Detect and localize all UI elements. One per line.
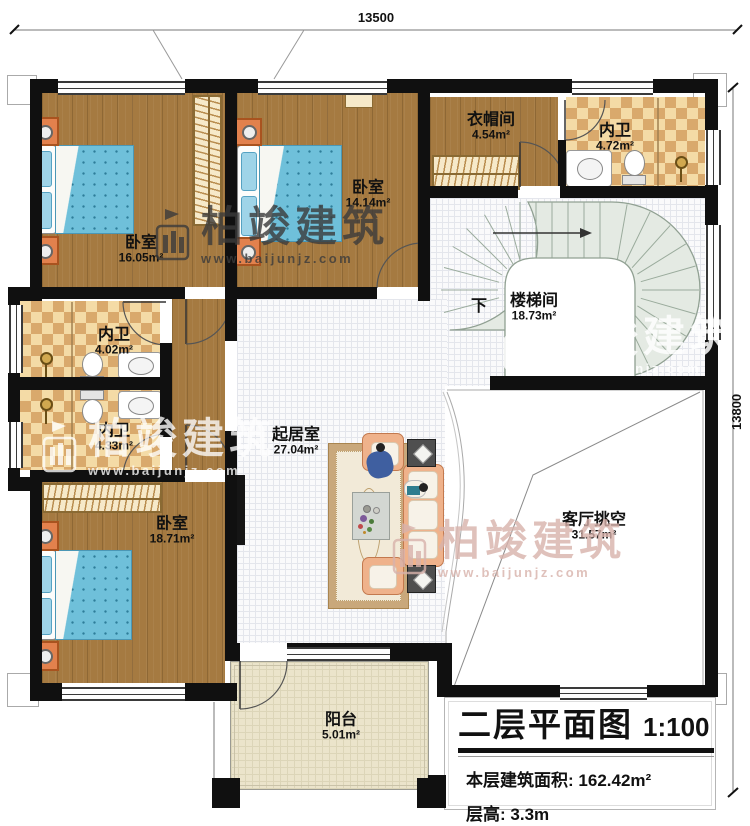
balcony-post: [212, 778, 240, 808]
room-label-stairwell: 楼梯间 18.73m²: [510, 292, 558, 323]
title-block: 二层平面图 1:100 本层建筑面积: 162.42m² 层高: 3.3m: [458, 708, 714, 825]
window: [258, 81, 387, 95]
title-row: 二层平面图 1:100: [458, 708, 714, 743]
window: [62, 687, 185, 701]
armchair-bottom: [362, 557, 404, 595]
room-area: 18.71m²: [150, 533, 195, 547]
wall: [185, 683, 237, 701]
floor-height-value: 3.3m: [510, 805, 549, 824]
room-area: 4.02m²: [95, 344, 133, 358]
wall: [232, 287, 377, 299]
wall: [428, 186, 518, 198]
title-underline-thin: [458, 756, 714, 757]
cushion: [408, 500, 438, 530]
room-name: 内卫: [596, 122, 634, 139]
dimension-line-top: [10, 25, 742, 79]
tv: [237, 475, 245, 545]
room-name: 卧室: [150, 515, 195, 532]
toilet-tank: [622, 175, 646, 185]
shower-head: [675, 156, 688, 169]
room-name: 内卫: [95, 422, 133, 439]
pillow: [241, 152, 257, 191]
room-label-living-void: 客厅挑空 31.57m²: [562, 511, 626, 542]
room-area: 4.33m²: [95, 440, 133, 454]
room-name: 起居室: [272, 426, 320, 443]
wall: [185, 79, 258, 93]
wall: [30, 287, 185, 299]
side-table: [407, 565, 436, 593]
dimension-top-value: 13500: [358, 10, 394, 25]
room-area: 16.05m²: [119, 252, 164, 266]
wall: [560, 186, 712, 198]
room-area: 18.73m²: [510, 310, 558, 324]
wall: [705, 79, 718, 130]
wall: [387, 79, 572, 93]
sink-basin: [577, 158, 603, 180]
bed1-mattress: [55, 145, 134, 234]
wardrobe-bedroom-topleft: [193, 95, 222, 226]
window: [9, 305, 23, 373]
room-name: 卧室: [346, 179, 391, 196]
shower-head: [40, 398, 53, 411]
room-area: 4.54m²: [467, 129, 515, 143]
stair-down-label: 下: [471, 292, 487, 316]
wall: [8, 468, 20, 477]
room-label-cloakroom: 衣帽间 4.54m²: [467, 111, 515, 142]
floor-area-value: 162.42m²: [578, 771, 651, 790]
wall: [30, 683, 62, 701]
pillow: [241, 196, 257, 236]
nightstand: [235, 118, 262, 146]
room-area: 5.01m²: [322, 729, 360, 743]
dimension-right-value: 13800: [729, 394, 744, 430]
room-label-living: 起居室 27.04m²: [272, 426, 320, 457]
wardrobe-cloakroom: [432, 155, 520, 190]
sink: [566, 150, 612, 187]
wall: [558, 140, 566, 186]
table-decor: [363, 505, 371, 513]
floor-area-row: 本层建筑面积: 162.42m²: [466, 766, 714, 791]
wall: [705, 340, 718, 697]
wall: [8, 373, 20, 422]
wall: [225, 93, 237, 299]
dresser-bedroom-middle: [345, 94, 373, 108]
floor-plan: 卧室 16.05m² 卧室 14.14m² 衣帽间 4.54m² 内卫 4.72…: [0, 0, 750, 826]
window: [287, 647, 390, 661]
room-area: 4.72m²: [596, 140, 634, 154]
plan-title: 二层平面图: [458, 708, 633, 741]
room-area: 14.14m²: [346, 197, 391, 211]
room-name: 内卫: [95, 326, 133, 343]
wall: [225, 299, 237, 341]
flower-bouquet: [360, 515, 367, 522]
floor-area-label: 本层建筑面积:: [466, 771, 574, 790]
room-label-bath-topright: 内卫 4.72m²: [596, 122, 634, 153]
nightstand: [235, 237, 261, 266]
room-name: 衣帽间: [467, 111, 515, 128]
room-area: 27.04m²: [272, 444, 320, 458]
window: [706, 225, 721, 340]
dimension-line-right: [728, 83, 738, 797]
bed2-mattress: [259, 145, 342, 242]
room-label-bedroom-bottomleft: 卧室 18.71m²: [150, 515, 195, 546]
wall: [437, 643, 452, 697]
floor-height-row: 层高: 3.3m: [466, 800, 714, 825]
room-label-bedroom-topleft: 卧室 16.05m²: [119, 234, 164, 265]
cushion: [408, 531, 438, 559]
shower-head: [40, 352, 53, 365]
side-table: [407, 439, 436, 467]
wardrobe-bedroom-bottomleft: [42, 483, 162, 513]
window: [58, 81, 185, 95]
wall: [225, 431, 237, 643]
person-head: [419, 483, 428, 492]
room-label-bath-mid-lower: 内卫 4.33m²: [95, 422, 133, 453]
room-label-balcony: 阳台 5.01m²: [322, 711, 360, 742]
window: [560, 687, 647, 700]
wall: [452, 685, 560, 697]
room-label-bedroom-middle: 卧室 14.14m²: [346, 179, 391, 210]
room-name: 卧室: [119, 234, 164, 251]
toilet-bowl: [624, 150, 645, 176]
terrace-post: [428, 775, 446, 808]
room-name: 阳台: [322, 711, 360, 728]
floor-stair-hall: [418, 198, 705, 390]
bed2-headboard: [237, 145, 261, 242]
room-name: 楼梯间: [510, 292, 558, 309]
room-label-bath-mid-upper: 内卫 4.02m²: [95, 326, 133, 357]
window: [9, 422, 23, 468]
sink: [118, 391, 162, 419]
plan-scale: 1:100: [643, 712, 710, 743]
wall: [20, 377, 160, 390]
window: [572, 81, 653, 95]
door-opening: [240, 643, 287, 661]
floor-height-label: 层高:: [466, 805, 506, 824]
table-decor: [373, 507, 380, 514]
floor-corridor: [172, 299, 225, 470]
person-head: [376, 443, 385, 452]
wall: [30, 491, 42, 683]
room-name: 客厅挑空: [562, 511, 626, 528]
title-underline: [458, 748, 714, 753]
wall: [30, 470, 185, 482]
toilet: [80, 390, 104, 424]
coffee-table: [352, 492, 390, 540]
wall: [490, 376, 718, 390]
toilet-bowl: [82, 399, 103, 424]
sink-basin: [128, 397, 154, 415]
cushion: [369, 565, 397, 589]
wall: [160, 343, 172, 437]
toilet: [622, 150, 646, 186]
wall: [30, 79, 42, 287]
sink-basin: [128, 357, 154, 375]
bed3-mattress: [55, 550, 132, 640]
room-area: 31.57m²: [562, 529, 626, 543]
window: [706, 130, 721, 185]
